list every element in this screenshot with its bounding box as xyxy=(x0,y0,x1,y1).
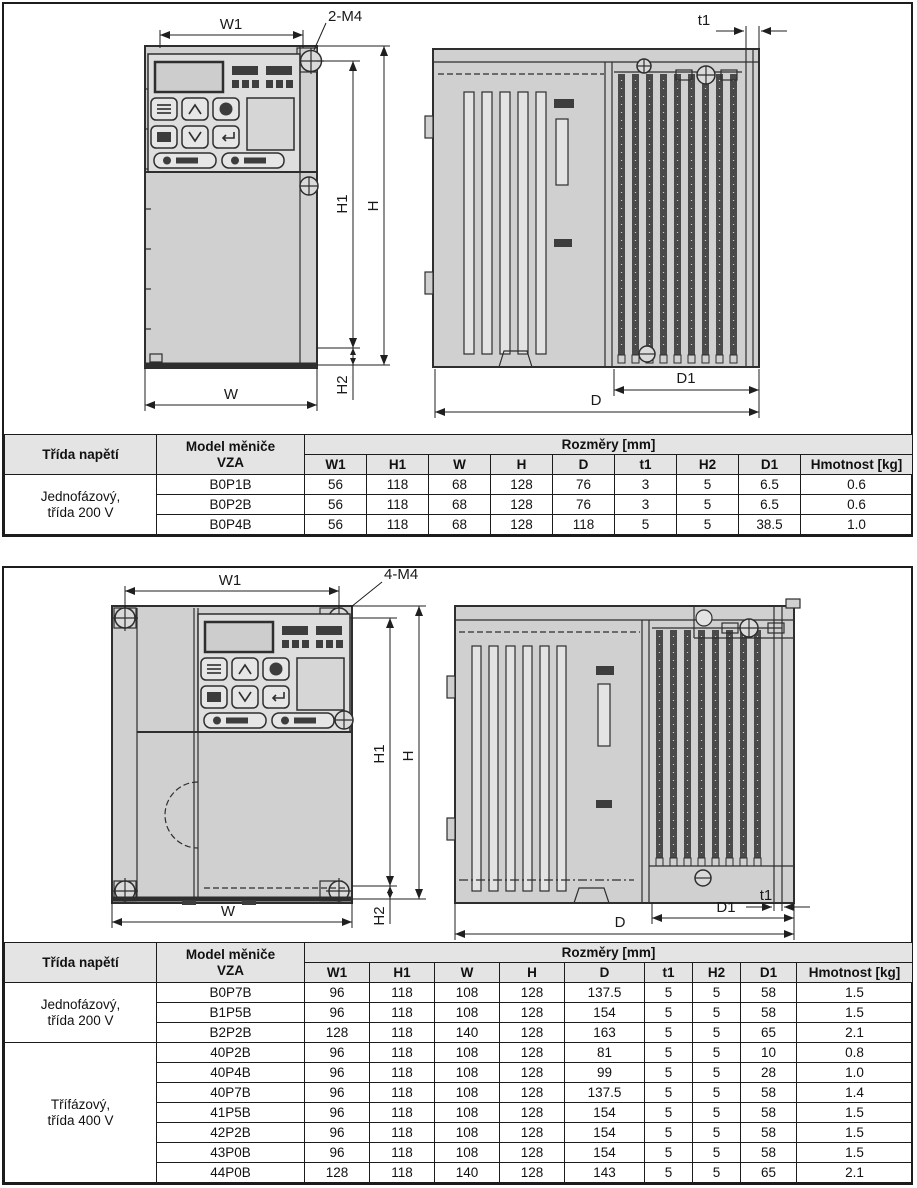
dim-value-cell: 154 xyxy=(565,1103,645,1123)
weight-cell: 1.0 xyxy=(797,1063,913,1083)
dim-value-cell: 108 xyxy=(435,1063,500,1083)
dim-value-cell: 5 xyxy=(645,1023,693,1043)
dimensions-table-small: Třída napětí Model měničeVZA Rozměry [mm… xyxy=(4,434,913,535)
dim-value-cell: 128 xyxy=(500,1003,565,1023)
dim-value-cell: 96 xyxy=(305,1123,370,1143)
dim-label-d1: D1 xyxy=(676,370,695,387)
up-arrow-button xyxy=(232,658,258,680)
dim-value-cell: 96 xyxy=(305,1003,370,1023)
dim-value-cell: 140 xyxy=(435,1163,500,1183)
dim-value-cell: 5 xyxy=(677,475,739,495)
dim-value-cell: 58 xyxy=(741,1083,797,1103)
weight-cell: 1.5 xyxy=(797,1103,913,1123)
model-cell: B0P1B xyxy=(157,475,305,495)
keypad xyxy=(198,614,350,732)
model-cell: B0P7B xyxy=(157,983,305,1003)
dim-label-h: H xyxy=(400,751,417,762)
front-view xyxy=(112,605,353,905)
model-cell: 41P5B xyxy=(157,1103,305,1123)
group-label-line: třída 400 V xyxy=(47,1113,113,1128)
dim-value-cell: 5 xyxy=(693,1023,741,1043)
weight-cell: 2.1 xyxy=(797,1163,913,1183)
dim-value-cell: 108 xyxy=(435,1143,500,1163)
cover-screw-icon xyxy=(300,177,318,195)
dim-label-w: W xyxy=(221,903,236,920)
weight-cell: 1.4 xyxy=(797,1083,913,1103)
dim-value-cell: 68 xyxy=(429,515,491,535)
dim-value-cell: 5 xyxy=(645,1163,693,1183)
dim-value-cell: 3 xyxy=(615,475,677,495)
header-dim-h: H xyxy=(491,455,553,475)
dim-value-cell: 128 xyxy=(500,1083,565,1103)
dim-value-cell: 58 xyxy=(741,983,797,1003)
up-arrow-button xyxy=(182,98,208,120)
enter-button xyxy=(213,126,239,148)
dim-value-cell: 76 xyxy=(553,475,615,495)
dim-value-cell: 5 xyxy=(645,1043,693,1063)
dim-value-cell: 128 xyxy=(491,495,553,515)
section-large-drive: W1 4-M4 H1 H H2 W D1 xyxy=(2,566,913,1185)
table-row: Jednofázový,třída 200 V B0P7B 96 118 108… xyxy=(5,983,913,1003)
side-view xyxy=(447,599,800,903)
dim-value-cell: 118 xyxy=(370,1043,435,1063)
header-dim-h2: H2 xyxy=(693,963,741,983)
header-dim-h1: H1 xyxy=(367,455,429,475)
dim-value-cell: 10 xyxy=(741,1043,797,1063)
dim-value-cell: 5 xyxy=(645,1143,693,1163)
dim-value-cell: 118 xyxy=(370,1083,435,1103)
side-view xyxy=(425,49,759,367)
dim-value-cell: 5 xyxy=(645,1083,693,1103)
dim-value-cell: 5 xyxy=(693,1163,741,1183)
down-arrow-button xyxy=(232,686,258,708)
header-dimensions: Rozměry [mm] xyxy=(305,435,913,455)
dim-value-cell: 76 xyxy=(553,495,615,515)
group-label-line: Jednofázový, xyxy=(41,997,121,1012)
dim-label-d: D xyxy=(591,392,602,409)
dim-value-cell: 5 xyxy=(645,1003,693,1023)
bottom-screw-icon xyxy=(695,870,711,886)
header-dim-h1: H1 xyxy=(370,963,435,983)
header-model-line1: Model měniče xyxy=(186,439,275,454)
header-dim-t1: t1 xyxy=(645,963,693,983)
dimension-drawing-small: W1 2-M4 H1 H H2 W t1 xyxy=(4,4,911,434)
weight-cell: 1.5 xyxy=(797,1123,913,1143)
dim-value-cell: 6.5 xyxy=(739,475,801,495)
bottom-screw-icon xyxy=(639,346,655,362)
dim-value-cell: 118 xyxy=(370,1163,435,1183)
dim-value-cell: 118 xyxy=(370,1023,435,1043)
dim-label-w1: W1 xyxy=(220,16,243,33)
dim-value-cell: 128 xyxy=(500,1103,565,1123)
dim-label-m4: 2-M4 xyxy=(328,8,362,25)
dim-value-cell: 5 xyxy=(645,1063,693,1083)
dim-value-cell: 65 xyxy=(741,1023,797,1043)
dim-value-cell: 3 xyxy=(615,495,677,515)
model-cell: 43P0B xyxy=(157,1143,305,1163)
dim-value-cell: 128 xyxy=(500,1143,565,1163)
dim-value-cell: 96 xyxy=(305,1063,370,1083)
dim-value-cell: 118 xyxy=(370,983,435,1003)
dim-value-cell: 118 xyxy=(370,1003,435,1023)
down-arrow-button xyxy=(182,126,208,148)
dim-value-cell: 154 xyxy=(565,1143,645,1163)
dim-value-cell: 118 xyxy=(370,1103,435,1123)
top-screw-icon xyxy=(637,59,651,73)
table-row: Jednofázový,třída 200 V B0P1B 56 118 68 … xyxy=(5,475,913,495)
dimension-drawing-large: W1 4-M4 H1 H H2 W D1 xyxy=(4,568,911,942)
dim-value-cell: 128 xyxy=(500,1023,565,1043)
model-cell: 40P2B xyxy=(157,1043,305,1063)
dim-value-cell: 5 xyxy=(693,1063,741,1083)
dim-value-cell: 108 xyxy=(435,1103,500,1123)
dim-value-cell: 68 xyxy=(429,495,491,515)
table-row: Třífázový,třída 400 V 40P2B 96 118 108 1… xyxy=(5,1043,913,1063)
header-model-line1: Model měniče xyxy=(186,947,275,962)
voltage-group-cell: Jednofázový,třída 200 V xyxy=(5,983,157,1043)
dim-value-cell: 118 xyxy=(370,1123,435,1143)
model-cell: B0P4B xyxy=(157,515,305,535)
dim-value-cell: 128 xyxy=(500,983,565,1003)
dim-value-cell: 5 xyxy=(693,1123,741,1143)
dim-label-h1: H1 xyxy=(371,744,388,763)
dim-value-cell: 5 xyxy=(693,1003,741,1023)
dim-value-cell: 58 xyxy=(741,1143,797,1163)
header-model: Model měničeVZA xyxy=(157,435,305,475)
dim-value-cell: 96 xyxy=(305,983,370,1003)
header-model: Model měničeVZA xyxy=(157,943,305,983)
dim-value-cell: 108 xyxy=(435,1043,500,1063)
dim-value-cell: 5 xyxy=(693,1083,741,1103)
dim-value-cell: 6.5 xyxy=(739,495,801,515)
header-dim-d: D xyxy=(565,963,645,983)
dim-value-cell: 128 xyxy=(305,1163,370,1183)
dim-value-cell: 5 xyxy=(693,1103,741,1123)
dim-value-cell: 154 xyxy=(565,1003,645,1023)
dim-label-h: H xyxy=(365,201,382,212)
dim-value-cell: 5 xyxy=(677,515,739,535)
header-dim-w1: W1 xyxy=(305,963,370,983)
dim-value-cell: 118 xyxy=(367,495,429,515)
dim-value-cell: 5 xyxy=(693,1143,741,1163)
dim-label-h2: H2 xyxy=(371,906,388,925)
dim-label-h2: H2 xyxy=(334,375,351,394)
dim-label-m4: 4-M4 xyxy=(384,568,418,583)
dim-label-h1: H1 xyxy=(334,194,351,213)
dim-value-cell: 96 xyxy=(305,1083,370,1103)
dim-value-cell: 143 xyxy=(565,1163,645,1183)
model-cell: B0P2B xyxy=(157,495,305,515)
header-dim-w: W xyxy=(435,963,500,983)
plate-screw-icon xyxy=(697,66,715,84)
header-dim-w: W xyxy=(429,455,491,475)
dim-value-cell: 163 xyxy=(565,1023,645,1043)
enter-button xyxy=(263,686,289,708)
dim-value-cell: 118 xyxy=(553,515,615,535)
dim-value-cell: 128 xyxy=(500,1063,565,1083)
dim-value-cell: 5 xyxy=(645,1123,693,1143)
voltage-group-cell: Třífázový,třída 400 V xyxy=(5,1043,157,1183)
dim-value-cell: 140 xyxy=(435,1023,500,1043)
dim-value-cell: 58 xyxy=(741,1123,797,1143)
dim-value-cell: 128 xyxy=(500,1163,565,1183)
header-dimensions: Rozměry [mm] xyxy=(305,943,913,963)
dim-value-cell: 56 xyxy=(305,515,367,535)
lcd-display xyxy=(155,62,223,92)
dim-value-cell: 118 xyxy=(370,1143,435,1163)
keypad xyxy=(148,54,300,172)
model-cell: 40P7B xyxy=(157,1083,305,1103)
header-voltage-class: Třída napětí xyxy=(5,943,157,983)
dim-value-cell: 81 xyxy=(565,1043,645,1063)
header-voltage-class: Třída napětí xyxy=(5,435,157,475)
dim-value-cell: 137.5 xyxy=(565,1083,645,1103)
dim-value-cell: 108 xyxy=(435,1003,500,1023)
heatsink-fins xyxy=(614,72,742,363)
vent-hole xyxy=(696,610,712,626)
dim-value-cell: 128 xyxy=(305,1023,370,1043)
dim-value-cell: 118 xyxy=(367,515,429,535)
header-dim-w1: W1 xyxy=(305,455,367,475)
weight-cell: 2.1 xyxy=(797,1023,913,1043)
dim-value-cell: 128 xyxy=(491,515,553,535)
dim-label-w1: W1 xyxy=(219,572,242,589)
header-dim-d1: D1 xyxy=(739,455,801,475)
dim-value-cell: 5 xyxy=(645,1103,693,1123)
dim-value-cell: 96 xyxy=(305,1043,370,1063)
weight-cell: 1.5 xyxy=(797,1003,913,1023)
weight-cell: 1.0 xyxy=(801,515,913,535)
plate-screw-icon xyxy=(740,619,758,637)
dim-value-cell: 68 xyxy=(429,475,491,495)
model-cell: 42P2B xyxy=(157,1123,305,1143)
header-weight: Hmotnost [kg] xyxy=(801,455,913,475)
dim-value-cell: 99 xyxy=(565,1063,645,1083)
model-cell: 40P4B xyxy=(157,1063,305,1083)
dim-value-cell: 128 xyxy=(500,1123,565,1143)
model-cell: 44P0B xyxy=(157,1163,305,1183)
weight-cell: 1.5 xyxy=(797,983,913,1003)
dim-value-cell: 56 xyxy=(305,475,367,495)
dim-value-cell: 5 xyxy=(615,515,677,535)
dim-value-cell: 96 xyxy=(305,1143,370,1163)
dim-label-t1: t1 xyxy=(760,887,773,904)
lcd-display xyxy=(205,622,273,652)
voltage-group-cell: Jednofázový,třída 200 V xyxy=(5,475,157,535)
weight-cell: 0.6 xyxy=(801,475,913,495)
dim-value-cell: 108 xyxy=(435,1083,500,1103)
header-model-line2: VZA xyxy=(217,455,244,470)
header-dim-h: H xyxy=(500,963,565,983)
model-cell: B1P5B xyxy=(157,1003,305,1023)
dim-value-cell: 128 xyxy=(491,475,553,495)
header-dim-h2: H2 xyxy=(677,455,739,475)
dim-value-cell: 58 xyxy=(741,1003,797,1023)
group-label-line: Třífázový, xyxy=(51,1097,110,1112)
dim-value-cell: 154 xyxy=(565,1123,645,1143)
dim-value-cell: 128 xyxy=(500,1043,565,1063)
weight-cell: 1.5 xyxy=(797,1143,913,1163)
dim-value-cell: 96 xyxy=(305,1103,370,1123)
model-cell: B2P2B xyxy=(157,1023,305,1043)
dim-label-w: W xyxy=(224,386,239,403)
header-dim-d1: D1 xyxy=(741,963,797,983)
dim-value-cell: 108 xyxy=(435,1123,500,1143)
dim-value-cell: 58 xyxy=(741,1103,797,1123)
dim-label-d: D xyxy=(615,914,626,931)
dimensions-table-large: Třída napětí Model měničeVZA Rozměry [mm… xyxy=(4,942,913,1183)
dim-value-cell: 108 xyxy=(435,983,500,1003)
header-dim-d: D xyxy=(553,455,615,475)
weight-cell: 0.6 xyxy=(801,495,913,515)
cover-screw-icon xyxy=(335,711,353,729)
header-weight: Hmotnost [kg] xyxy=(797,963,913,983)
dim-value-cell: 5 xyxy=(677,495,739,515)
group-label-line: třída 200 V xyxy=(47,505,113,520)
dim-value-cell: 118 xyxy=(367,475,429,495)
terminal-cover xyxy=(297,658,344,710)
dim-value-cell: 65 xyxy=(741,1163,797,1183)
weight-cell: 0.8 xyxy=(797,1043,913,1063)
dim-value-cell: 137.5 xyxy=(565,983,645,1003)
datasheet-page: W1 2-M4 H1 H H2 W t1 xyxy=(0,0,917,1188)
dim-value-cell: 38.5 xyxy=(739,515,801,535)
dim-value-cell: 56 xyxy=(305,495,367,515)
group-label-line: Jednofázový, xyxy=(41,489,121,504)
section-small-drive: W1 2-M4 H1 H H2 W t1 xyxy=(2,2,913,537)
dim-value-cell: 28 xyxy=(741,1063,797,1083)
dim-value-cell: 5 xyxy=(693,983,741,1003)
group-label-line: třída 200 V xyxy=(47,1013,113,1028)
front-view xyxy=(145,46,324,368)
header-dim-t1: t1 xyxy=(615,455,677,475)
dim-value-cell: 118 xyxy=(370,1063,435,1083)
header-model-line2: VZA xyxy=(217,963,244,978)
dim-label-d1: D1 xyxy=(716,899,735,916)
dim-label-t1: t1 xyxy=(698,12,711,29)
dim-value-cell: 5 xyxy=(645,983,693,1003)
terminal-cover xyxy=(247,98,294,150)
dim-value-cell: 5 xyxy=(693,1043,741,1063)
